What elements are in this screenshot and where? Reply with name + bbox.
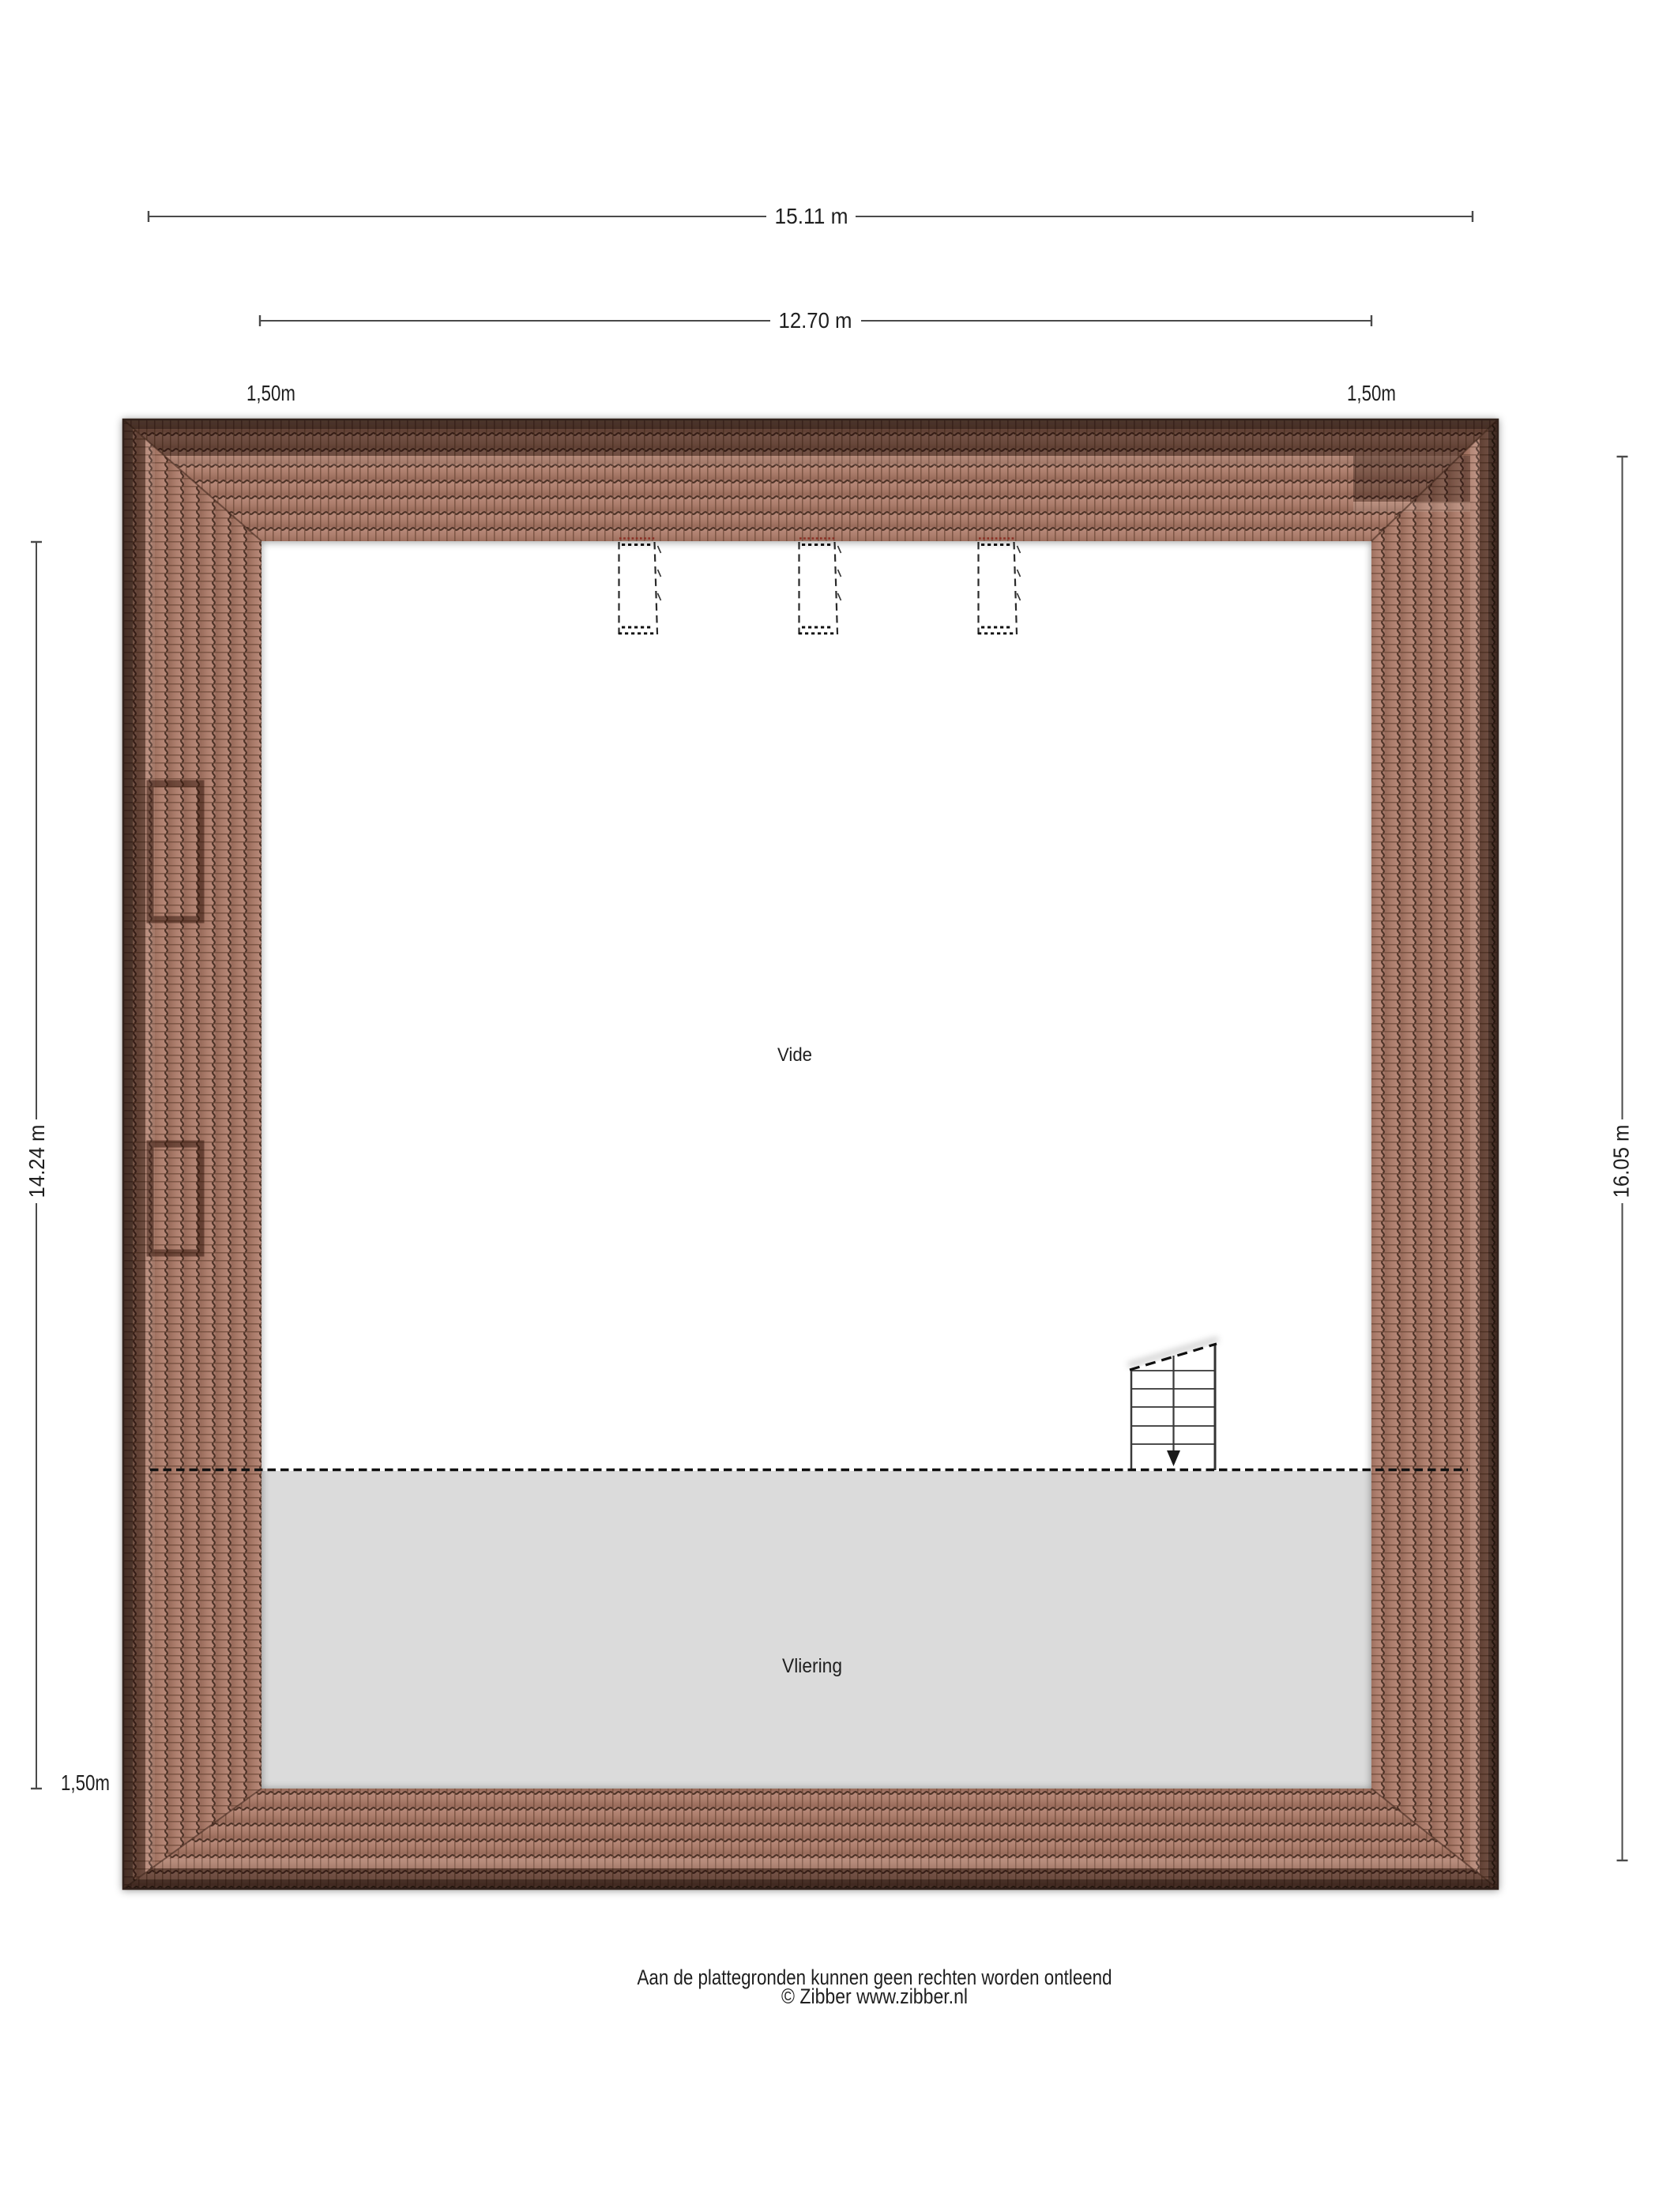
svg-text:15.11 m: 15.11 m [775,204,848,228]
svg-text:12.70 m: 12.70 m [779,308,852,333]
svg-text:16.05 m: 16.05 m [1609,1125,1634,1198]
svg-text:1,50m: 1,50m [1347,381,1396,405]
svg-text:Vide: Vide [777,1044,812,1066]
svg-text:1,50m: 1,50m [61,1770,110,1795]
svg-text:© Zibber www.zibber.nl: © Zibber www.zibber.nl [781,1984,968,2008]
svg-text:1,50m: 1,50m [246,381,295,405]
svg-text:14.24 m: 14.24 m [24,1125,49,1198]
svg-text:Vliering: Vliering [782,1655,842,1677]
